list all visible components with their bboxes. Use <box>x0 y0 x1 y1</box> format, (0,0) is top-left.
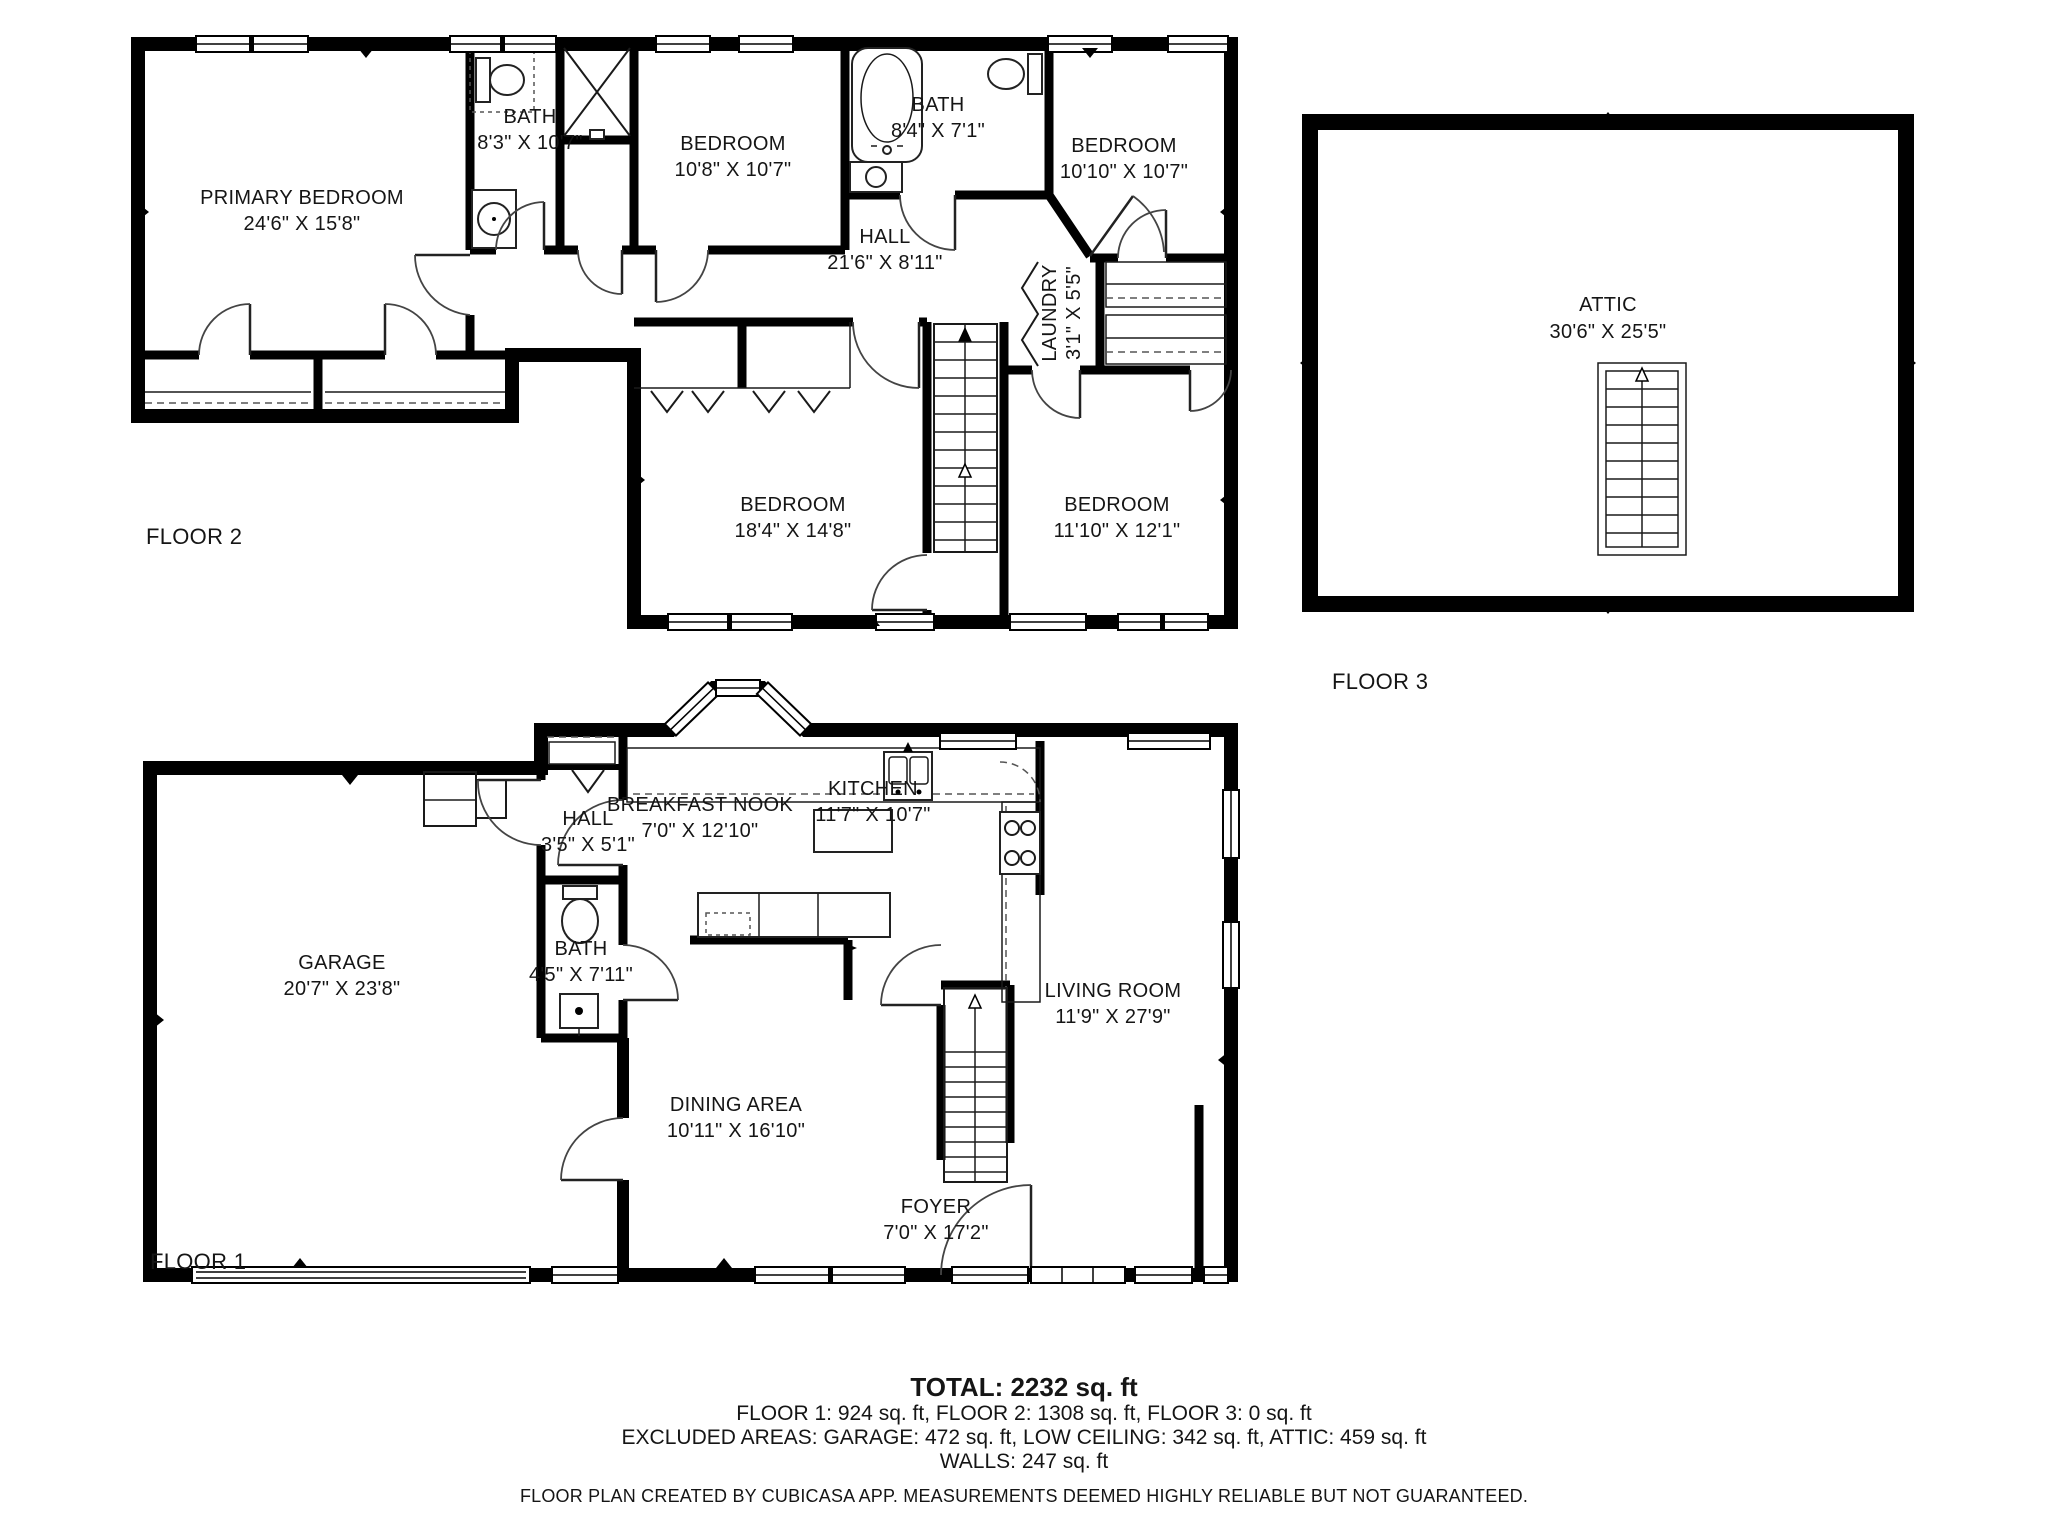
room-label-attic: ATTIC <box>1579 294 1637 316</box>
summary-excluded: EXCLUDED AREAS: GARAGE: 472 sq. ft, LOW … <box>622 1426 1427 1449</box>
room-label-bath-f1: BATH <box>554 938 607 960</box>
summary-total: TOTAL: 2232 sq. ft <box>910 1372 1138 1402</box>
room-dims-bath-f2a: 8'3" X 10'7" <box>477 132 583 154</box>
room-dims-hall-f1: 3'5" X 5'1" <box>541 834 635 856</box>
summary-block: TOTAL: 2232 sq. ft FLOOR 1: 924 sq. ft, … <box>520 1372 1528 1506</box>
room-label-laundry: LAUNDRY <box>1039 264 1061 361</box>
floor-plan-page: PRIMARY BEDROOM 24'6" X 15'8" BATH 8'3" … <box>0 0 2048 1536</box>
staircase-floor3 <box>1598 363 1686 555</box>
toilet-icon-bath2a <box>470 50 534 112</box>
room-label-breakfast-nook: BREAKFAST NOOK <box>607 794 793 816</box>
room-label-bedroom-f2b: BEDROOM <box>1071 135 1176 157</box>
room-dims-attic: 30'6" X 25'5" <box>1550 321 1667 343</box>
front-door-threshold <box>1031 1267 1125 1283</box>
summary-floors: FLOOR 1: 924 sq. ft, FLOOR 2: 1308 sq. f… <box>736 1402 1312 1425</box>
room-label-primary-bedroom: PRIMARY BEDROOM <box>200 187 404 209</box>
sink-vanity-icon-bath2a <box>472 190 516 248</box>
shower-stall-icon <box>564 48 630 139</box>
floor1-plan: GARAGE 20'7" X 23'8" HALL 3'5" X 5'1" BR… <box>150 680 1239 1283</box>
staircase-floor2 <box>934 324 997 552</box>
dining-peninsula-cabinet <box>698 893 890 937</box>
summary-walls: WALLS: 247 sq. ft <box>940 1450 1109 1473</box>
staircase-floor1 <box>944 988 1007 1182</box>
room-dims-kitchen: 11'7" X 10'7" <box>815 804 930 826</box>
room-label-bedroom-f2a: BEDROOM <box>680 133 785 155</box>
room-label-bedroom-f2d: BEDROOM <box>1064 494 1169 516</box>
floor2-label: FLOOR 2 <box>146 524 242 549</box>
room-label-bedroom-f2c: BEDROOM <box>740 494 845 516</box>
room-dims-laundry: 3'1" X 5'5" <box>1063 266 1085 360</box>
room-label-kitchen: KITCHEN <box>828 778 918 800</box>
room-label-dining-area: DINING AREA <box>670 1094 803 1116</box>
room-dims-breakfast-nook: 7'0" X 12'10" <box>642 820 759 842</box>
room-dims-bath-f2b: 8'4" X 7'1" <box>891 120 985 142</box>
floor2-closet-details <box>145 392 505 403</box>
room-dims-bath-f1: 4'5" X 7'11" <box>529 964 633 986</box>
room-dims-primary-bedroom: 24'6" X 15'8" <box>244 213 361 235</box>
stove-icon <box>1000 812 1040 874</box>
floor2-plan: PRIMARY BEDROOM 24'6" X 15'8" BATH 8'3" … <box>138 36 1231 630</box>
room-dims-bedroom-f2d: 11'10" X 12'1" <box>1054 520 1181 542</box>
room-label-foyer: FOYER <box>901 1196 971 1218</box>
floor3-label: FLOOR 3 <box>1332 669 1428 694</box>
room-dims-hall-f2: 21'6" X 8'11" <box>827 252 942 274</box>
room-label-hall-f2: HALL <box>859 226 910 248</box>
sink-vanity-icon-bath2b <box>850 162 902 192</box>
room-dims-dining-area: 10'11" X 16'10" <box>667 1120 805 1142</box>
toilet-icon-bath-f1 <box>562 886 598 943</box>
room-label-bath-f2a: BATH <box>503 106 556 128</box>
room-label-living-room: LIVING ROOM <box>1045 980 1182 1002</box>
disclaimer-text: FLOOR PLAN CREATED BY CUBICASA APP. MEAS… <box>520 1486 1528 1506</box>
room-dims-garage: 20'7" X 23'8" <box>284 978 401 1000</box>
floor-plan-drawing: PRIMARY BEDROOM 24'6" X 15'8" BATH 8'3" … <box>0 0 2048 1536</box>
floor1-label: FLOOR 1 <box>150 1249 246 1274</box>
room-dims-living-room: 11'9" X 27'9" <box>1055 1006 1170 1028</box>
room-dims-bedroom-f2b: 10'10" X 10'7" <box>1060 161 1188 183</box>
hall-closet-floor1 <box>547 737 617 792</box>
room-label-hall-f1: HALL <box>562 808 613 830</box>
toilet-icon-bath2b <box>988 54 1042 94</box>
laundry-accordion-door-icon <box>1022 262 1038 366</box>
hall-closet-shelves <box>1106 262 1226 364</box>
bay-window <box>665 680 811 736</box>
floor3-plan: ATTIC 30'6" X 25'5" FLOOR 3 <box>1300 112 1916 694</box>
room-label-garage: GARAGE <box>298 952 385 974</box>
room-dims-bedroom-f2c: 18'4" X 14'8" <box>735 520 852 542</box>
room-dims-bedroom-f2a: 10'8" X 10'7" <box>675 159 792 181</box>
room-dims-foyer: 7'0" X 17'2" <box>883 1222 989 1244</box>
room-label-bath-f2b: BATH <box>911 94 964 116</box>
sink-icon-bath-f1 <box>560 994 598 1036</box>
